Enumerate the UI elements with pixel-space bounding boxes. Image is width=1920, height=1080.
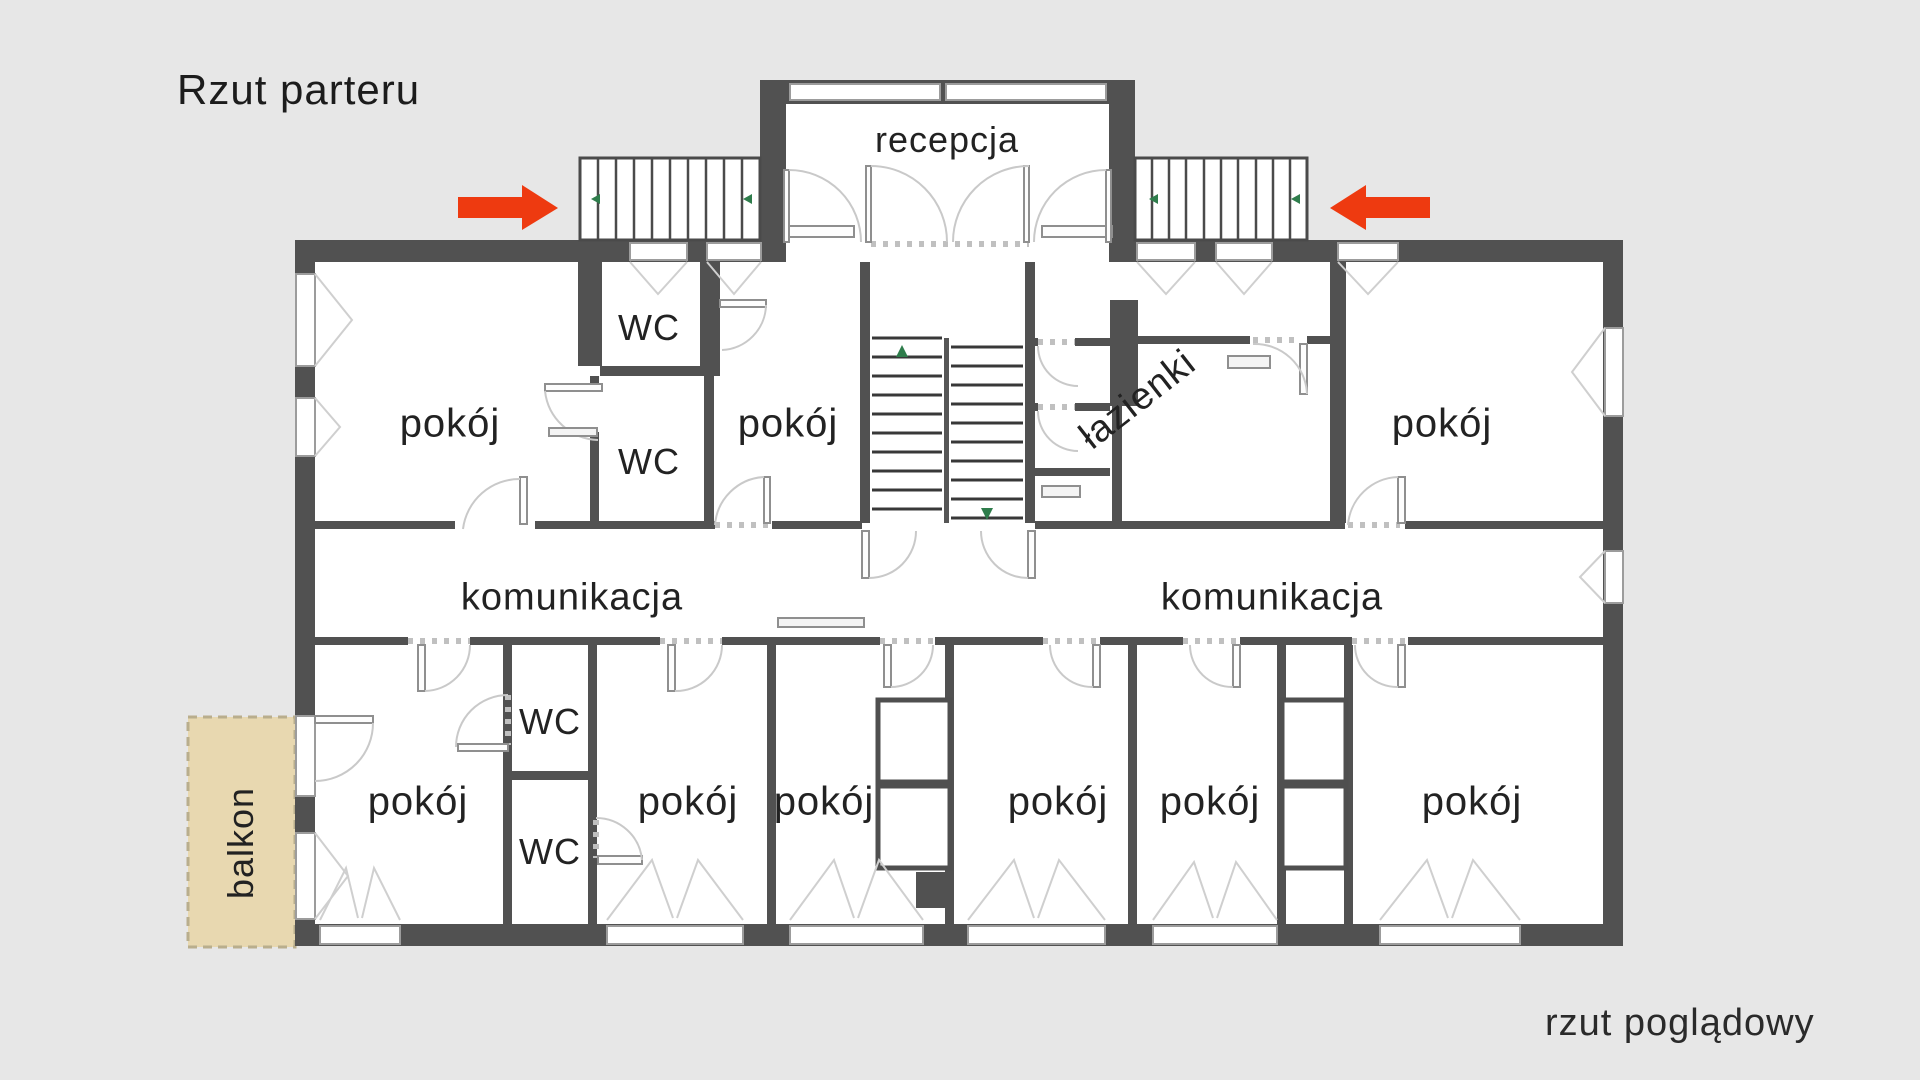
entrance-arrow-left-icon <box>1330 185 1430 230</box>
page-caption: rzut poglądowy <box>1545 1002 1815 1045</box>
floor-plan-drawing <box>0 0 1920 1080</box>
balcony-area <box>188 717 295 947</box>
external-stairs-left <box>580 158 760 240</box>
floor-plan-page: Rzut parteru <box>0 0 1920 1080</box>
external-stairs-right <box>1135 158 1307 240</box>
entrance-arrow-right-icon <box>458 185 558 230</box>
